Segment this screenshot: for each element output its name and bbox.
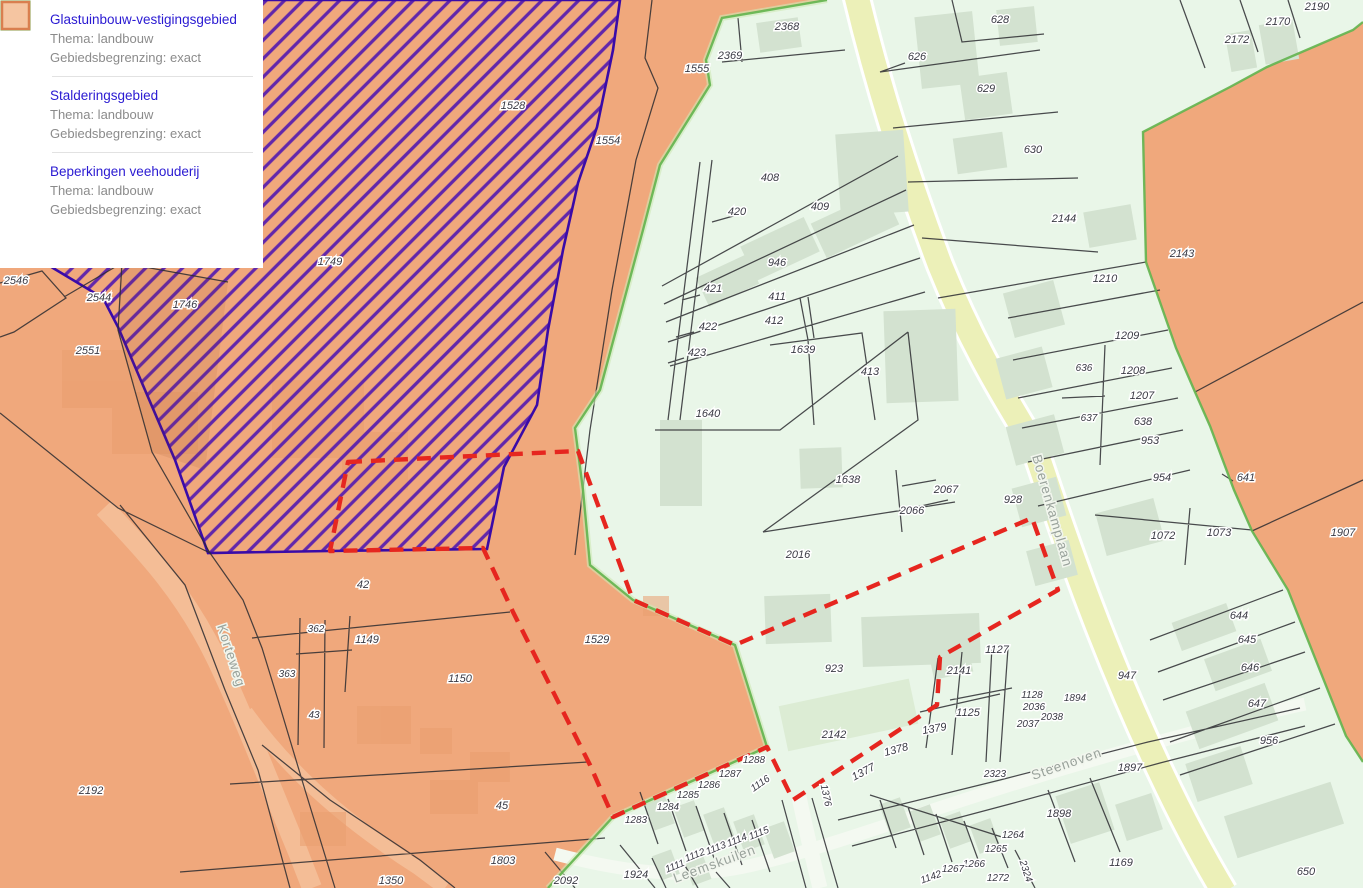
parcel-label: 411 — [768, 291, 786, 303]
parcel-label: 45 — [496, 800, 509, 812]
parcel-label: 1267 — [942, 864, 965, 875]
parcel-label: 1210 — [1093, 273, 1118, 285]
parcel-label: 630 — [1024, 144, 1043, 156]
legend-thema: Thema: landbouw — [50, 181, 201, 200]
parcel-label: 1924 — [624, 869, 648, 881]
parcel-label: 43 — [308, 710, 320, 721]
parcel-label: 1207 — [1130, 390, 1155, 402]
parcel-label: 2143 — [1169, 248, 1195, 260]
parcel-label: 1639 — [791, 344, 815, 356]
parcel-label: 1284 — [657, 802, 680, 813]
parcel-label: 928 — [1004, 494, 1023, 506]
parcel-label: 1749 — [318, 256, 342, 268]
parcel-label: 2144 — [1051, 213, 1076, 225]
parcel-label: 946 — [768, 257, 787, 269]
parcel-label: 362 — [308, 624, 325, 635]
parcel-label: 947 — [1118, 670, 1137, 682]
legend-divider — [52, 76, 253, 77]
parcel-label: 1264 — [1002, 830, 1025, 841]
parcel-label: 2067 — [933, 484, 959, 496]
parcel-label: 646 — [1241, 662, 1260, 674]
legend-thema: Thema: landbouw — [50, 29, 237, 48]
parcel-label: 2170 — [1265, 16, 1291, 28]
parcel-label: 1529 — [585, 634, 609, 646]
parcel-label: 1072 — [1151, 530, 1175, 542]
parcel-label: 645 — [1238, 634, 1257, 646]
parcel-label: 2323 — [983, 769, 1007, 780]
parcel-label: 1265 — [985, 844, 1008, 855]
parcel-label: 644 — [1230, 610, 1248, 622]
parcel-label: 1125 — [956, 707, 981, 719]
parcel-label: 647 — [1248, 698, 1267, 710]
parcel-label: 1528 — [501, 100, 526, 112]
parcel-label: 628 — [991, 14, 1010, 26]
legend-title: Glastuinbouw-vestigingsgebied — [50, 10, 237, 29]
parcel-label: 1127 — [985, 644, 1010, 656]
parcel-label: 420 — [728, 206, 747, 218]
parcel-label: 1286 — [698, 780, 721, 791]
parcel-label: 1169 — [1109, 857, 1133, 869]
parcel-label: 409 — [811, 201, 829, 213]
map-viewport: KortewegBoerenkamplaanLeemskuilenSteenov… — [0, 0, 1363, 888]
parcel-label: 1897 — [1118, 762, 1143, 774]
parcel-label: 641 — [1237, 472, 1255, 484]
parcel-label: 2172 — [1224, 34, 1249, 46]
parcel-label: 2369 — [717, 50, 742, 62]
parcel-label: 1288 — [743, 755, 766, 766]
parcel-label: 408 — [761, 172, 780, 184]
parcel-label: 2066 — [899, 505, 925, 517]
legend-grens: Gebiedsbegrenzing: exact — [50, 124, 201, 143]
legend-title: Beperkingen veehouderij — [50, 162, 201, 181]
parcel-label: 2544 — [86, 292, 111, 304]
legend-divider — [52, 152, 253, 153]
parcel-label: 1554 — [596, 135, 620, 147]
parcel-label: 629 — [977, 83, 995, 95]
parcel-label: 1208 — [1121, 365, 1146, 377]
legend-item-staldering: Stalderingsgebied Thema: landbouw Gebied… — [8, 86, 253, 143]
parcel-label: 1894 — [1064, 693, 1087, 704]
legend-panel: Glastuinbouw-vestigingsgebied Thema: lan… — [0, 0, 263, 268]
parcel-label: 422 — [699, 321, 717, 333]
parcel-label: 1266 — [963, 859, 986, 870]
parcel-label: 1149 — [355, 634, 379, 646]
parcel-label: 1128 — [1021, 690, 1043, 701]
parcel-label: 421 — [704, 283, 722, 295]
parcel-label: 1209 — [1115, 330, 1139, 342]
legend-item-glastuinbouw: Glastuinbouw-vestigingsgebied Thema: lan… — [8, 10, 253, 67]
parcel-label: 363 — [279, 669, 296, 680]
parcel-label: 956 — [1260, 735, 1279, 747]
parcel-label: 638 — [1134, 416, 1153, 428]
parcel-label: 953 — [1141, 435, 1160, 447]
parcel-label: 2141 — [946, 665, 971, 677]
parcel-label: 1272 — [987, 873, 1010, 884]
parcel-label: 1907 — [1331, 527, 1356, 539]
parcel-label: 1350 — [379, 875, 404, 887]
legend-grens: Gebiedsbegrenzing: exact — [50, 48, 237, 67]
parcel-label: 2038 — [1040, 712, 1064, 723]
parcel-label: 413 — [861, 366, 880, 378]
parcel-label: 1150 — [448, 673, 473, 685]
parcel-label: 1555 — [685, 63, 710, 75]
parcel-label: 1283 — [625, 815, 648, 826]
parcel-label: 650 — [1297, 866, 1316, 878]
legend-item-beperkingen: Beperkingen veehouderij Thema: landbouw … — [8, 162, 253, 219]
beperkingen-salmon-swatch-icon — [8, 162, 42, 219]
legend-title: Stalderingsgebied — [50, 86, 201, 105]
parcel-label: 2092 — [553, 875, 578, 887]
parcel-label: 1287 — [719, 769, 742, 780]
parcel-label: 2551 — [75, 345, 100, 357]
parcel-label: 423 — [688, 347, 707, 359]
parcel-label: 923 — [825, 663, 844, 675]
parcel-label: 1803 — [491, 855, 516, 867]
parcel-label: 1746 — [173, 299, 198, 311]
parcel-label: 1073 — [1207, 527, 1232, 539]
parcel-label: 626 — [908, 51, 927, 63]
legend-grens: Gebiedsbegrenzing: exact — [50, 200, 201, 219]
parcel-label: 2190 — [1304, 1, 1330, 13]
parcel-label: 2037 — [1016, 719, 1040, 730]
parcel-label: 1638 — [836, 474, 861, 486]
parcel-label: 2192 — [78, 785, 103, 797]
parcel-label: 1640 — [696, 408, 721, 420]
legend-thema: Thema: landbouw — [50, 105, 201, 124]
parcel-label: 2016 — [785, 549, 811, 561]
parcel-label: 412 — [765, 315, 783, 327]
staldering-green-swatch-icon — [8, 86, 42, 143]
parcel-label: 637 — [1081, 413, 1098, 424]
parcel-label: 954 — [1153, 472, 1171, 484]
parcel-label: 2142 — [821, 729, 846, 741]
parcel-label: 2368 — [774, 21, 800, 33]
parcel-label: 1898 — [1047, 808, 1072, 820]
parcel-label: 2546 — [3, 275, 29, 287]
parcel-label: 42 — [357, 579, 369, 591]
parcel-label: 1285 — [677, 790, 700, 801]
parcel-label: 636 — [1076, 363, 1093, 374]
